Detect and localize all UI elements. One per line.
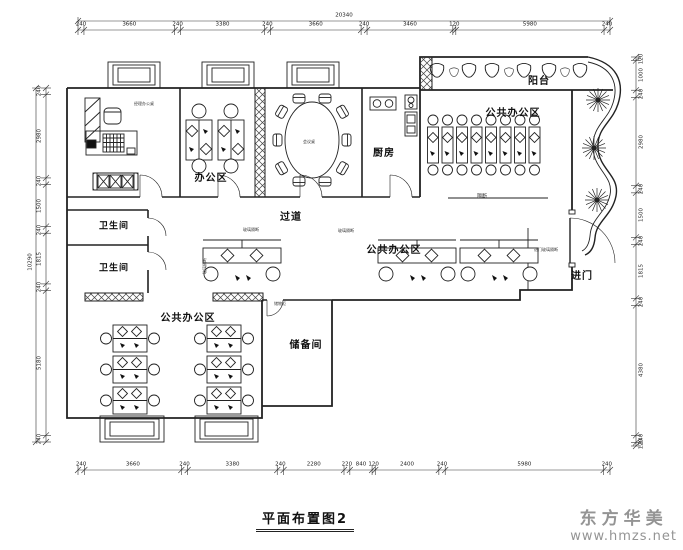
label-restroom-upper: 卫生间 <box>99 223 129 232</box>
kitchen-fixtures <box>370 95 417 136</box>
dim-label: 3660 <box>126 462 140 468</box>
dim-label: 5180 <box>37 356 43 370</box>
watermark-site: www.hmzs.net <box>570 529 677 544</box>
label-storage-cabinet-note: 储物柜 <box>274 302 286 306</box>
label-public-office-bottom: 公共办公区 <box>161 314 216 324</box>
label-partition-note-3: 玻璃隔断 <box>203 258 207 274</box>
dim-label: 1815 <box>639 264 645 278</box>
label-kitchen: 厨房 <box>373 149 395 159</box>
public-office-top-workstations <box>428 115 541 175</box>
dim-label: 240 <box>639 184 645 195</box>
dim-label: 3660 <box>122 22 136 28</box>
label-meeting-table-note: 会议桌 <box>303 140 315 144</box>
plants <box>582 88 610 212</box>
dim-label: 220 <box>342 462 353 468</box>
label-entry-partition-note: 进门玻璃隔断 <box>534 248 558 252</box>
label-office-area: 办公区 <box>195 174 228 184</box>
label-public-office-mid: 公共办公区 <box>367 246 422 256</box>
dim-top-total: 20340 <box>335 13 353 19</box>
public-office-bottom-workstations <box>101 325 254 414</box>
balcony-curved-wall <box>582 57 620 255</box>
dim-label: 240 <box>639 236 645 247</box>
dim-label: 240 <box>437 462 448 468</box>
dim-label: 240 <box>37 225 43 236</box>
dim-label: 120 <box>368 462 379 468</box>
dim-label: 240 <box>602 22 613 28</box>
dim-label: 1000 <box>639 68 645 82</box>
dim-label: 240 <box>37 86 43 97</box>
dim-label: 1500 <box>639 208 645 222</box>
partitions <box>203 198 548 290</box>
label-balcony: 阳台 <box>528 77 550 87</box>
dim-label: 3460 <box>403 22 417 28</box>
dim-label: 2400 <box>400 462 414 468</box>
dim-label: 4380 <box>639 363 645 377</box>
label-restroom-lower: 卫生间 <box>99 265 129 274</box>
label-entrance: 进门 <box>571 272 593 282</box>
dim-label: 240 <box>275 462 286 468</box>
dim-label: 840 <box>356 462 367 468</box>
dim-label: 240 <box>639 297 645 308</box>
dim-label: 120 <box>449 22 460 28</box>
dim-label: 3380 <box>216 22 230 28</box>
dim-label: 120 <box>639 439 645 450</box>
label-partition: 隔断 <box>477 195 487 200</box>
label-public-office-top: 公共办公区 <box>486 109 541 119</box>
sofa <box>93 173 138 190</box>
dim-label: 240 <box>179 462 190 468</box>
label-storage: 储备间 <box>290 341 323 351</box>
dim-label: 240 <box>639 89 645 100</box>
entrance-door <box>569 210 615 267</box>
dim-label: 3660 <box>309 22 323 28</box>
label-manager-desk-note: 经理办公桌 <box>134 102 154 106</box>
manager-office-furniture <box>85 98 137 155</box>
dim-label: 5980 <box>523 22 537 28</box>
dim-label: 2280 <box>307 462 321 468</box>
label-partition-note-1: 玻璃隔断 <box>243 228 259 232</box>
dim-label: 240 <box>172 22 183 28</box>
dim-label: 240 <box>262 22 273 28</box>
office-area-workstations <box>186 104 244 173</box>
watermark: 东方华美 www.hmzs.net <box>570 504 677 544</box>
dim-left-total: 10290 <box>28 253 34 271</box>
label-corridor: 过道 <box>280 213 302 223</box>
dim-label: 240 <box>37 282 43 293</box>
dim-label: 2980 <box>37 129 43 143</box>
dim-label: 240 <box>37 176 43 187</box>
floor-plan-page: 经理办公桌 办公区 会议桌 厨房 公共办公区 阳台 过道 卫生间 卫生间 公共办… <box>0 0 683 550</box>
dim-label: 1500 <box>37 199 43 213</box>
dim-label: 120 <box>639 54 645 65</box>
dim-label: 240 <box>359 22 370 28</box>
drawing-title-text: 平面布置图2 <box>256 508 354 532</box>
dim-label: 240 <box>602 462 613 468</box>
dim-label: 5980 <box>517 462 531 468</box>
watermark-brand: 东方华美 <box>570 504 677 529</box>
drawing-title: 平面布置图2 <box>245 508 365 532</box>
dim-label: 2980 <box>639 135 645 149</box>
dim-label: 3380 <box>225 462 239 468</box>
balcony-pebbles <box>430 63 587 77</box>
dim-label: 1815 <box>37 252 43 266</box>
dim-label: 240 <box>76 462 87 468</box>
dim-label: 240 <box>37 433 43 444</box>
hatched-wall-strips <box>85 57 432 301</box>
label-partition-note-2: 玻璃隔断 <box>338 229 354 233</box>
dim-label: 240 <box>76 22 87 28</box>
